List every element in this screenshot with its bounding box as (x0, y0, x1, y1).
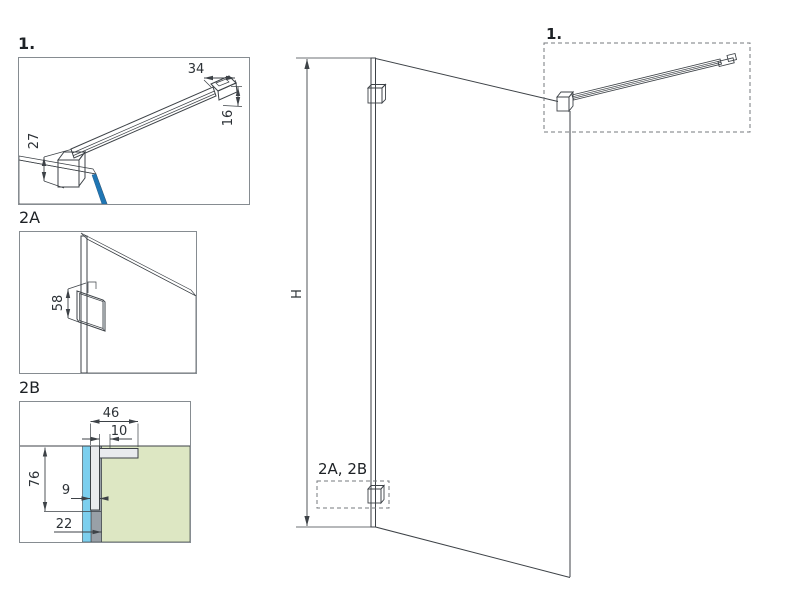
technical-drawing-canvas: 1. 2A 2B 1. 2A, 2B (0, 0, 800, 595)
glass-panel-outline (371, 58, 570, 578)
callout-1-dashed-box (544, 43, 750, 132)
main-view-drawing: H (0, 0, 800, 595)
wall-profile (371, 58, 376, 527)
dimension-H: H (290, 58, 372, 527)
dim-H-text: H (290, 289, 305, 299)
support-bar (572, 59, 722, 100)
bar-glass-clamp (557, 92, 573, 111)
